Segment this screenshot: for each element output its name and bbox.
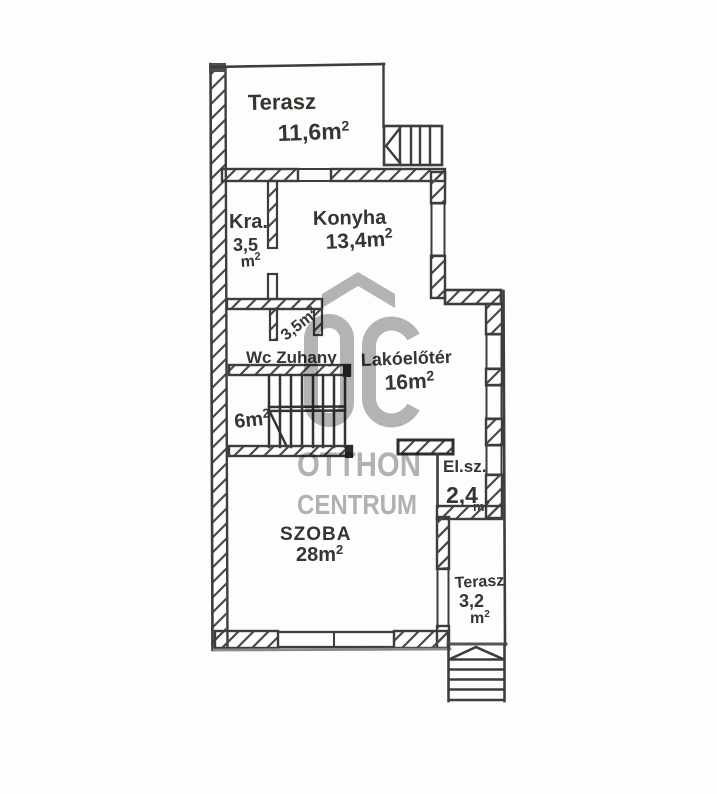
svg-text:Terasz: Terasz (248, 89, 317, 115)
svg-text:El.sz.: El.sz. (443, 457, 486, 476)
svg-text:CENTRUM: CENTRUM (297, 489, 417, 520)
svg-text:OTTHON: OTTHON (297, 446, 421, 484)
svg-text:Kra.: Kra. (229, 211, 268, 233)
svg-text:3,2: 3,2 (459, 591, 484, 611)
svg-text:11,6m2: 11,6m2 (277, 118, 350, 146)
svg-text:Terasz: Terasz (454, 572, 504, 592)
svg-text:Konyha: Konyha (313, 207, 388, 230)
